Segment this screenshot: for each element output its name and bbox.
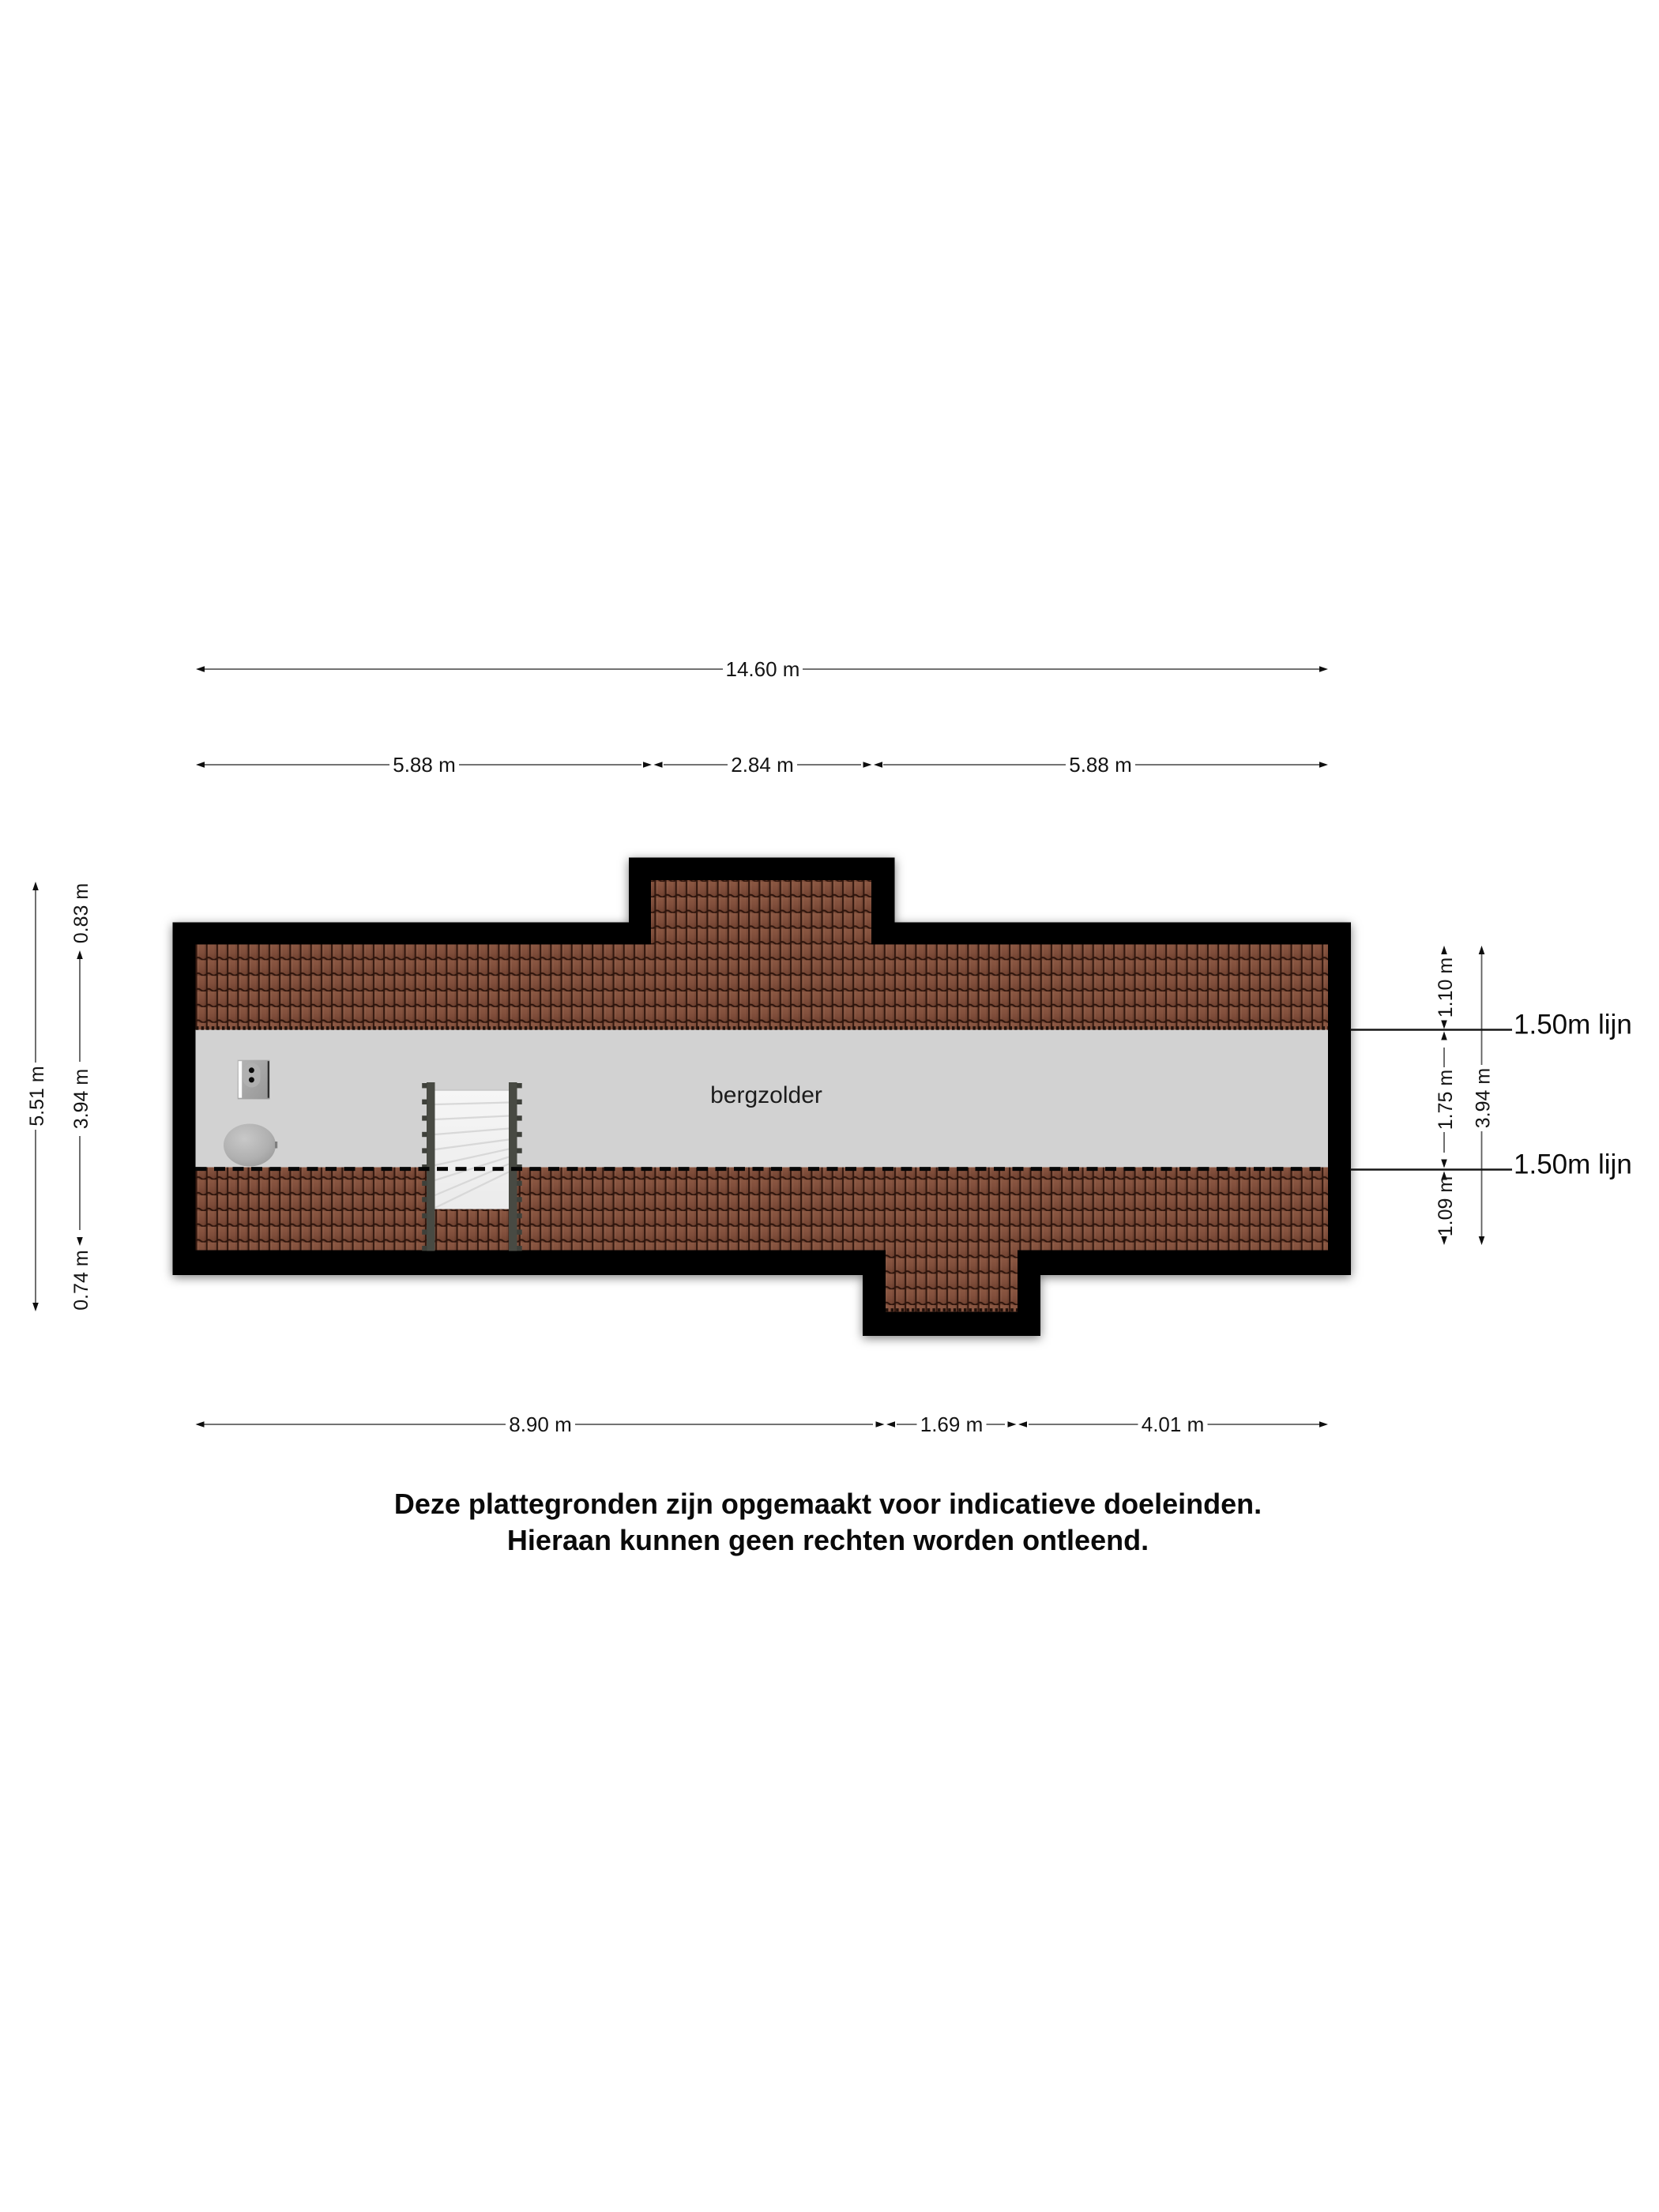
svg-text:1.10 m: 1.10 m bbox=[1435, 957, 1457, 1018]
svg-text:2.84 m: 2.84 m bbox=[731, 753, 794, 777]
svg-text:Deze plattegronden zijn opgema: Deze plattegronden zijn opgemaakt voor i… bbox=[394, 1488, 1262, 1520]
svg-text:1.69 m: 1.69 m bbox=[920, 1413, 984, 1436]
svg-text:8.90 m: 8.90 m bbox=[509, 1413, 572, 1436]
svg-text:1.75 m: 1.75 m bbox=[1435, 1070, 1457, 1130]
svg-text:1.09 m: 1.09 m bbox=[1435, 1176, 1457, 1236]
svg-text:0.83 m: 0.83 m bbox=[70, 883, 92, 943]
svg-text:3.94 m: 3.94 m bbox=[70, 1069, 92, 1129]
svg-text:5.88 m: 5.88 m bbox=[393, 753, 456, 777]
svg-text:5.51 m: 5.51 m bbox=[26, 1066, 48, 1126]
svg-text:0.74 m: 0.74 m bbox=[70, 1250, 92, 1310]
svg-text:4.01 m: 4.01 m bbox=[1142, 1413, 1205, 1436]
svg-text:3.94 m: 3.94 m bbox=[1473, 1068, 1495, 1128]
svg-text:1.50m lijn: 1.50m lijn bbox=[1514, 1149, 1632, 1180]
svg-text:bergzolder: bergzolder bbox=[710, 1082, 822, 1108]
svg-text:5.88 m: 5.88 m bbox=[1069, 753, 1132, 777]
svg-text:14.60 m: 14.60 m bbox=[726, 657, 800, 681]
svg-text:Hieraan kunnen geen rechten wo: Hieraan kunnen geen rechten worden ontle… bbox=[507, 1524, 1149, 1556]
svg-text:1.50m lijn: 1.50m lijn bbox=[1514, 1010, 1632, 1040]
